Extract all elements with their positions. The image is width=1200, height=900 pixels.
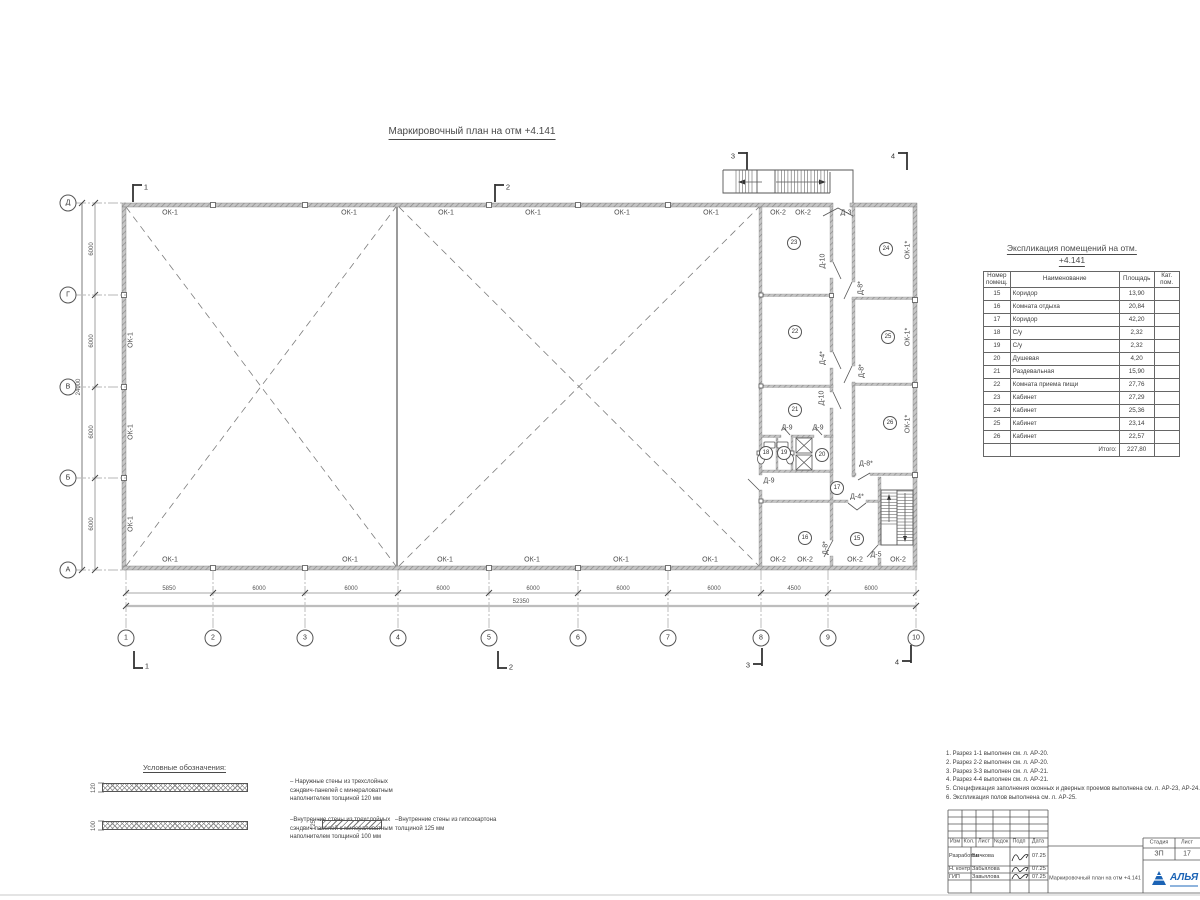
room-number-18: 18 [759, 446, 773, 460]
window-label: ОК-2 [795, 210, 811, 217]
table-cell: 24 [984, 405, 1011, 418]
dimension-label: 6000 [526, 586, 539, 592]
dimension-label: 24000 [76, 379, 82, 396]
table-cell: 26 [984, 431, 1011, 444]
table-cell: 21 [984, 366, 1011, 379]
section-mark-label: 4 [891, 152, 895, 160]
window-label: ОК-1 [438, 210, 454, 217]
window-label: ОК-1 [524, 557, 540, 564]
room-number-25: 25 [881, 330, 895, 344]
table-cell [1154, 379, 1179, 392]
tb-role: ГИП [949, 875, 960, 881]
table-cell: 25 [984, 418, 1011, 431]
legend-item-text: сэндвич-панелей с минераловатным [290, 788, 393, 794]
room-number-24: 24 [879, 242, 893, 256]
note-line: 1. Разрез 1-1 выполнен см. л. АР-20. [946, 751, 1049, 757]
tb-doc-title: Маркировочный план на отм +4.141 [1049, 876, 1141, 882]
section-mark-label: 4 [895, 658, 899, 666]
logo-subtext [1170, 885, 1198, 887]
schedule-title-line2: +4.141 [1059, 255, 1085, 267]
dimension-label: 6000 [344, 586, 357, 592]
window-label: ОК-1* [905, 328, 912, 346]
table-row: 15Коридор13,90 [984, 288, 1180, 301]
grid-row-bubble-Г: Г [60, 287, 77, 304]
note-line: 5. Спецификация заполнения оконных и две… [946, 786, 1200, 792]
dimension-label: 6000 [616, 586, 629, 592]
table-cell [1154, 353, 1179, 366]
door-label: Д-8* [823, 541, 830, 555]
door-label: Д-3 [841, 210, 852, 217]
table-cell: 19 [984, 340, 1011, 353]
tb-stage-value: ЗП [1154, 851, 1163, 858]
table-row: 19С/у2,32 [984, 340, 1180, 353]
room-number-22: 22 [788, 325, 802, 339]
window-label: ОК-2 [890, 557, 906, 564]
schedule-header: Номер помещ. [984, 272, 1011, 288]
dimension-label: 4500 [787, 586, 800, 592]
door-label: Д-8* [858, 281, 865, 295]
tb-date: 07.25 [1032, 867, 1046, 873]
window-label: ОК-2 [797, 557, 813, 564]
room-number-23: 23 [787, 236, 801, 250]
window-label: ОК-1 [525, 210, 541, 217]
window-label: ОК-2 [770, 210, 786, 217]
table-cell [1154, 444, 1179, 457]
room-number-17: 17 [830, 481, 844, 495]
note-line: 6. Экспликация полов выполнена см. л. АР… [946, 795, 1077, 801]
window-label: ОК-1 [703, 210, 719, 217]
door-label: Д-4* [850, 494, 864, 501]
dimension-label: 6000 [89, 425, 95, 438]
window-label: ОК-1 [437, 557, 453, 564]
room-number-19: 19 [777, 446, 791, 460]
schedule-title-line1: Экспликация помещений на отм. [1007, 243, 1137, 255]
table-cell: С/у [1010, 340, 1119, 353]
legend-item-text: наполнителем толщиной 100 мм [290, 834, 381, 840]
table-cell: 13,90 [1119, 288, 1154, 301]
table-row: 26Кабинет22,57 [984, 431, 1180, 444]
table-cell: 20,84 [1119, 301, 1154, 314]
section-mark-label: 2 [509, 663, 513, 671]
grid-row-bubble-В: В [60, 379, 77, 396]
tb-col-kol: Кол. [964, 839, 975, 845]
table-row: 18С/у2,32 [984, 327, 1180, 340]
grid-column-bubble-5: 5 [481, 630, 498, 647]
dimension-label: 6000 [89, 242, 95, 255]
grid-column-bubble-2: 2 [205, 630, 222, 647]
grid-column-bubble-9: 9 [820, 630, 837, 647]
table-cell: Комната отдыха [1010, 301, 1119, 314]
tb-date: 07.25 [1032, 875, 1046, 881]
table-cell: 2,32 [1119, 327, 1154, 340]
grid-row-bubble-Б: Б [60, 470, 77, 487]
tb-col-list: Лист [978, 839, 990, 845]
window-label: ОК-1 [342, 557, 358, 564]
tb-name: Бычкова [972, 854, 994, 860]
legend-thickness-label: 100 [91, 821, 97, 831]
table-row: 21Раздевальная15,90 [984, 366, 1180, 379]
grid-column-bubble-7: 7 [660, 630, 677, 647]
table-cell: 25,36 [1119, 405, 1154, 418]
grid-row-bubble-А: А [60, 562, 77, 579]
section-mark-label: 3 [746, 661, 750, 669]
table-row: 25Кабинет23,14 [984, 418, 1180, 431]
door-label: Д-8* [859, 364, 866, 378]
tb-col-izm: Изм [950, 839, 960, 845]
table-cell [1154, 314, 1179, 327]
dimension-label: 6000 [89, 517, 95, 530]
dimension-label: 52350 [513, 599, 530, 605]
table-cell: 42,20 [1119, 314, 1154, 327]
room-schedule-table: Номер помещ.НаименованиеПлощадьКат. пом.… [983, 271, 1180, 457]
tb-role: Н. контр [949, 867, 970, 873]
table-cell: 4,20 [1119, 353, 1154, 366]
door-label: Д-5 [871, 552, 882, 559]
table-cell [1154, 327, 1179, 340]
door-label: Д-9 [764, 478, 775, 485]
table-cell [1154, 340, 1179, 353]
table-cell: 16 [984, 301, 1011, 314]
interior-walls [761, 207, 913, 566]
table-row: 24Кабинет25,36 [984, 405, 1180, 418]
tb-col-podp: Подп [1012, 839, 1025, 845]
window-label: ОК-1 [341, 210, 357, 217]
room-number-15: 15 [850, 532, 864, 546]
legend-item-text: –Внутренние стены из гипсокартона [395, 817, 496, 823]
window-label: ОК-1 [162, 210, 178, 217]
dimension-label: 6000 [436, 586, 449, 592]
table-cell: Кабинет [1010, 431, 1119, 444]
door-swings [748, 208, 878, 557]
window-label: ОК-1 [702, 557, 718, 564]
section-mark-label: 3 [731, 152, 735, 160]
window-label: ОК-2 [770, 557, 786, 564]
table-row: 23Кабинет27,29 [984, 392, 1180, 405]
table-row: 22Комната приема пищи27,76 [984, 379, 1180, 392]
window-label: ОК-1 [614, 210, 630, 217]
note-line: 3. Разрез 3-3 выполнен см. л. АР-21. [946, 769, 1049, 775]
table-row: Итого:227,80 [984, 444, 1180, 457]
table-cell: С/у [1010, 327, 1119, 340]
table-cell: Кабинет [1010, 405, 1119, 418]
grid-column-bubble-8: 8 [753, 630, 770, 647]
window-label: ОК-1* [905, 241, 912, 259]
hall-diagonals [126, 207, 759, 566]
interior-stair [881, 490, 913, 545]
note-line: 4. Разрез 4-4 выполнен см. л. АР-21. [946, 777, 1049, 783]
exterior-stair [723, 170, 853, 203]
room-number-21: 21 [788, 403, 802, 417]
door-label: Д-8* [859, 461, 873, 468]
page-edge-line [0, 894, 1200, 896]
table-cell [1154, 288, 1179, 301]
dimension-label: 6000 [707, 586, 720, 592]
tb-date: 07.25 [1032, 854, 1046, 860]
sheet-title: Маркировочный план на отм +4.141 [389, 126, 556, 140]
note-line: 2. Разрез 2-2 выполнен см. л. АР-20. [946, 760, 1049, 766]
table-cell: 22,57 [1119, 431, 1154, 444]
tb-name: Завьялова [972, 875, 999, 881]
window-label: ОК-2 [847, 557, 863, 564]
table-cell: Раздевальная [1010, 366, 1119, 379]
tb-stage-label: Стадия [1150, 840, 1169, 846]
table-cell: 22 [984, 379, 1011, 392]
drawing-sheet: Маркировочный план на отм +4.141 Эксплик… [0, 0, 1200, 900]
legend-item-text: толщиной 125 мм [395, 826, 444, 832]
legend-thickness-label: 125 [311, 820, 317, 830]
legend-item-text: – Наружные стены из трехслойных [290, 779, 388, 785]
table-cell: 2,32 [1119, 340, 1154, 353]
table-cell: 27,29 [1119, 392, 1154, 405]
table-cell: 27,76 [1119, 379, 1154, 392]
room-number-20: 20 [815, 448, 829, 462]
tb-sheet-value: 17 [1183, 851, 1191, 858]
window-label: ОК-1 [613, 557, 629, 564]
door-label: Д-9 [813, 425, 824, 432]
table-cell: 23 [984, 392, 1011, 405]
table-cell [984, 444, 1011, 457]
schedule-header: Кат. пом. [1154, 272, 1179, 288]
company-logo: АЛЬЯ [1150, 869, 1200, 891]
table-cell: 227,80 [1119, 444, 1154, 457]
table-cell [1154, 301, 1179, 314]
grid-column-bubble-1: 1 [118, 630, 135, 647]
window-label: ОК-1 [162, 557, 178, 564]
grid-row-bubble-Д: Д [60, 195, 77, 212]
table-cell [1154, 431, 1179, 444]
table-cell: Кабинет [1010, 392, 1119, 405]
legend-wall-sample [102, 783, 248, 792]
door-label: Д-4* [820, 351, 827, 365]
table-cell: Коридор [1010, 314, 1119, 327]
window-label: ОК-1 [128, 516, 135, 532]
table-cell [1154, 405, 1179, 418]
signatures [1012, 854, 1028, 879]
room-number-26: 26 [883, 416, 897, 430]
legend-title: Условные обозначения: [143, 763, 226, 773]
dimension-label: 6000 [89, 334, 95, 347]
table-cell: Душевая [1010, 353, 1119, 366]
table-row: 17Коридор42,20 [984, 314, 1180, 327]
tb-col-ndok: №док [994, 839, 1009, 845]
logo-text: АЛЬЯ [1170, 873, 1198, 883]
table-cell: 17 [984, 314, 1011, 327]
table-cell: 23,14 [1119, 418, 1154, 431]
table-cell [1154, 366, 1179, 379]
table-cell [1154, 418, 1179, 431]
legend-item-text: наполнителем толщиной 120 мм [290, 796, 381, 802]
tb-sheet-label: Лист [1181, 840, 1193, 846]
door-label: Д-10 [820, 254, 827, 269]
dimension-label: 5850 [162, 586, 175, 592]
table-row: 20Душевая4,20 [984, 353, 1180, 366]
section-mark-label: 1 [144, 183, 148, 191]
table-cell [1154, 392, 1179, 405]
legend-thickness-label: 120 [91, 783, 97, 793]
window-label: ОК-1 [128, 424, 135, 440]
section-mark-label: 1 [145, 662, 149, 670]
table-row: 16Комната отдыха20,84 [984, 301, 1180, 314]
grid-column-bubble-10: 10 [908, 630, 925, 647]
table-cell: Кабинет [1010, 418, 1119, 431]
schedule-header: Наименование [1010, 272, 1119, 288]
grid-column-bubble-3: 3 [297, 630, 314, 647]
grid-column-bubble-4: 4 [390, 630, 407, 647]
table-cell: 15,90 [1119, 366, 1154, 379]
door-label: Д-10 [819, 391, 826, 406]
table-cell: Комната приема пищи [1010, 379, 1119, 392]
table-cell: 18 [984, 327, 1011, 340]
tb-name: Забьялова [972, 867, 1000, 873]
table-cell: Коридор [1010, 288, 1119, 301]
window-label: ОК-1* [905, 415, 912, 433]
grid-column-bubble-6: 6 [570, 630, 587, 647]
dimension-label: 6000 [864, 586, 877, 592]
window-label: ОК-1 [128, 332, 135, 348]
table-cell: Итого: [1010, 444, 1119, 457]
legend-wall-sample [322, 820, 382, 829]
dimension-label: 6000 [252, 586, 265, 592]
section-mark-label: 2 [506, 183, 510, 191]
legend-wall-sample [102, 821, 248, 830]
tb-col-data: Дата [1032, 839, 1044, 845]
door-label: Д-9 [782, 425, 793, 432]
table-cell: 15 [984, 288, 1011, 301]
room-number-16: 16 [798, 531, 812, 545]
table-cell: 20 [984, 353, 1011, 366]
schedule-header: Площадь [1119, 272, 1154, 288]
